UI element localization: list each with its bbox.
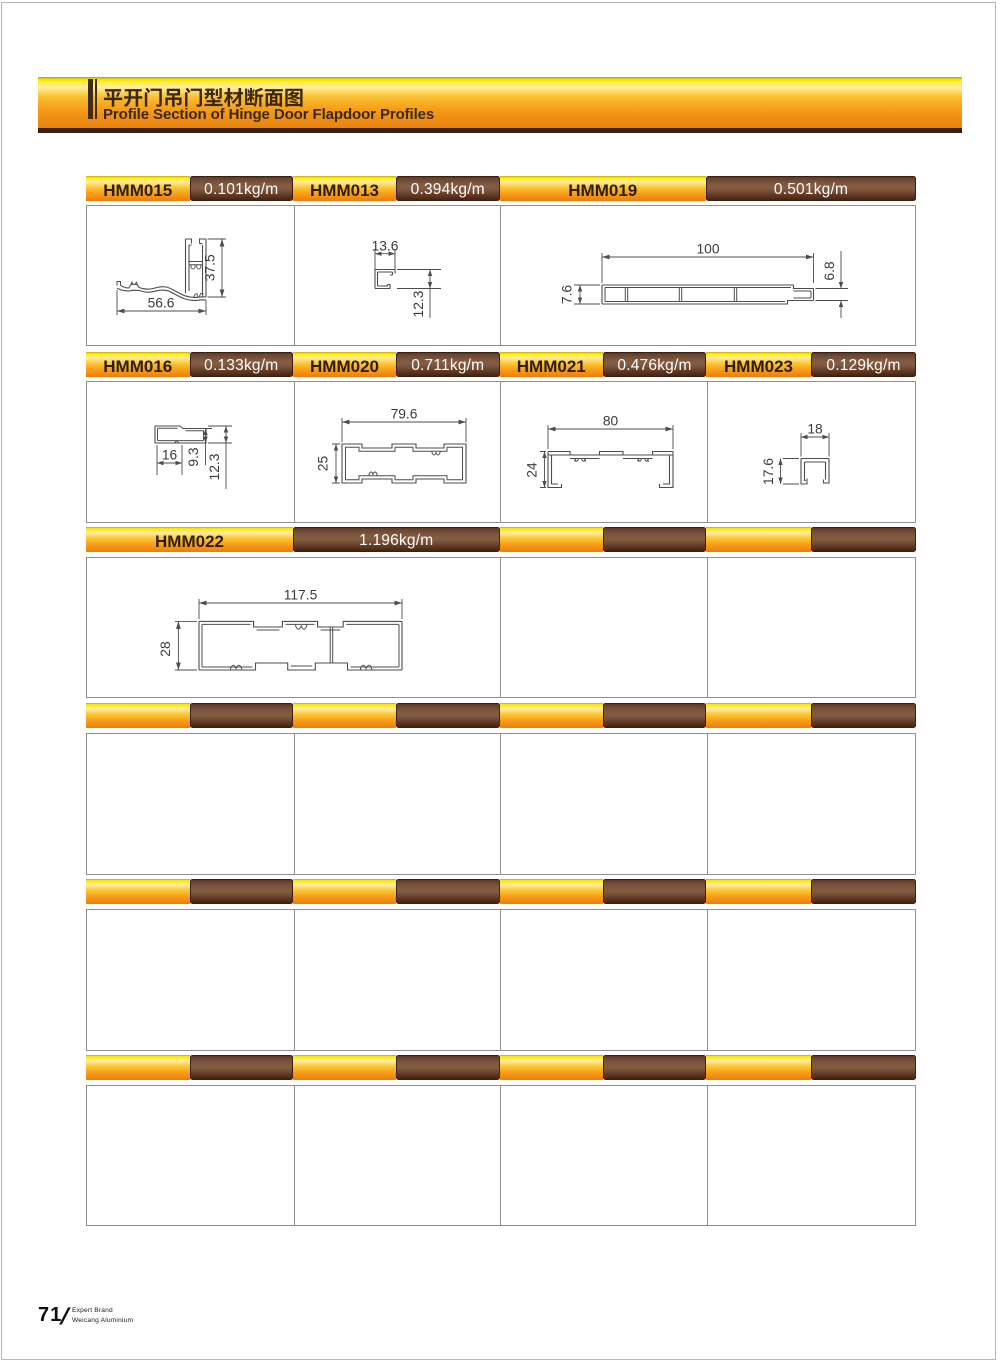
svg-text:9.3: 9.3 [186, 447, 201, 467]
svg-text:80: 80 [602, 414, 618, 429]
svg-text:37.5: 37.5 [203, 254, 218, 281]
svg-text:117.5: 117.5 [284, 588, 318, 603]
svg-text:28: 28 [158, 641, 173, 657]
svg-text:100: 100 [696, 242, 719, 257]
svg-text:12.3: 12.3 [411, 290, 426, 317]
svg-text:16: 16 [162, 448, 178, 463]
svg-text:25: 25 [316, 456, 331, 472]
svg-text:56.6: 56.6 [148, 296, 175, 311]
svg-text:17.6: 17.6 [761, 458, 776, 485]
svg-text:79.6: 79.6 [391, 407, 418, 422]
svg-text:12.3: 12.3 [207, 453, 222, 480]
svg-text:13.6: 13.6 [372, 239, 399, 254]
svg-text:18: 18 [807, 422, 823, 437]
svg-text:7.6: 7.6 [559, 285, 574, 305]
svg-text:24: 24 [524, 462, 539, 478]
svg-text:6.8: 6.8 [822, 261, 837, 281]
